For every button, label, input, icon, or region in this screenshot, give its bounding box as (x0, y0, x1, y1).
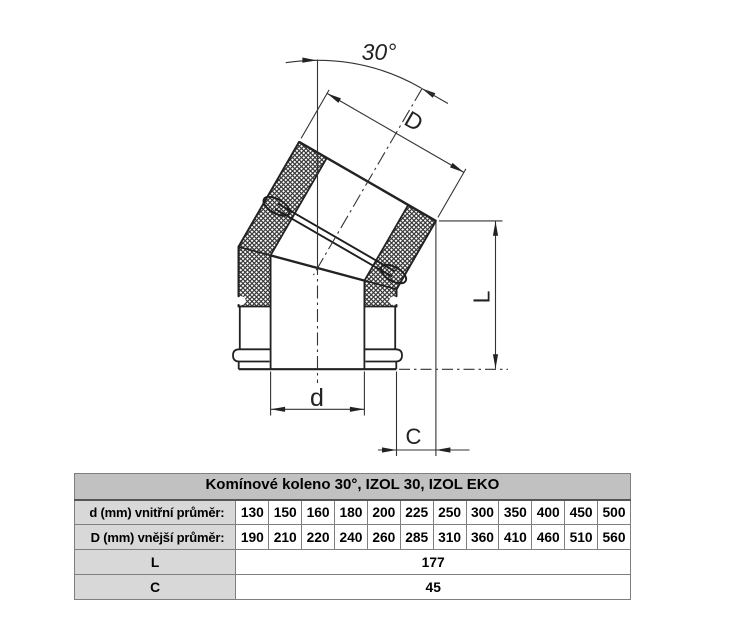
svg-text:L: L (469, 290, 495, 303)
svg-text:C: C (406, 424, 422, 449)
svg-text:d: d (310, 384, 324, 412)
svg-text:30°: 30° (362, 39, 397, 65)
svg-text:D: D (400, 106, 427, 137)
